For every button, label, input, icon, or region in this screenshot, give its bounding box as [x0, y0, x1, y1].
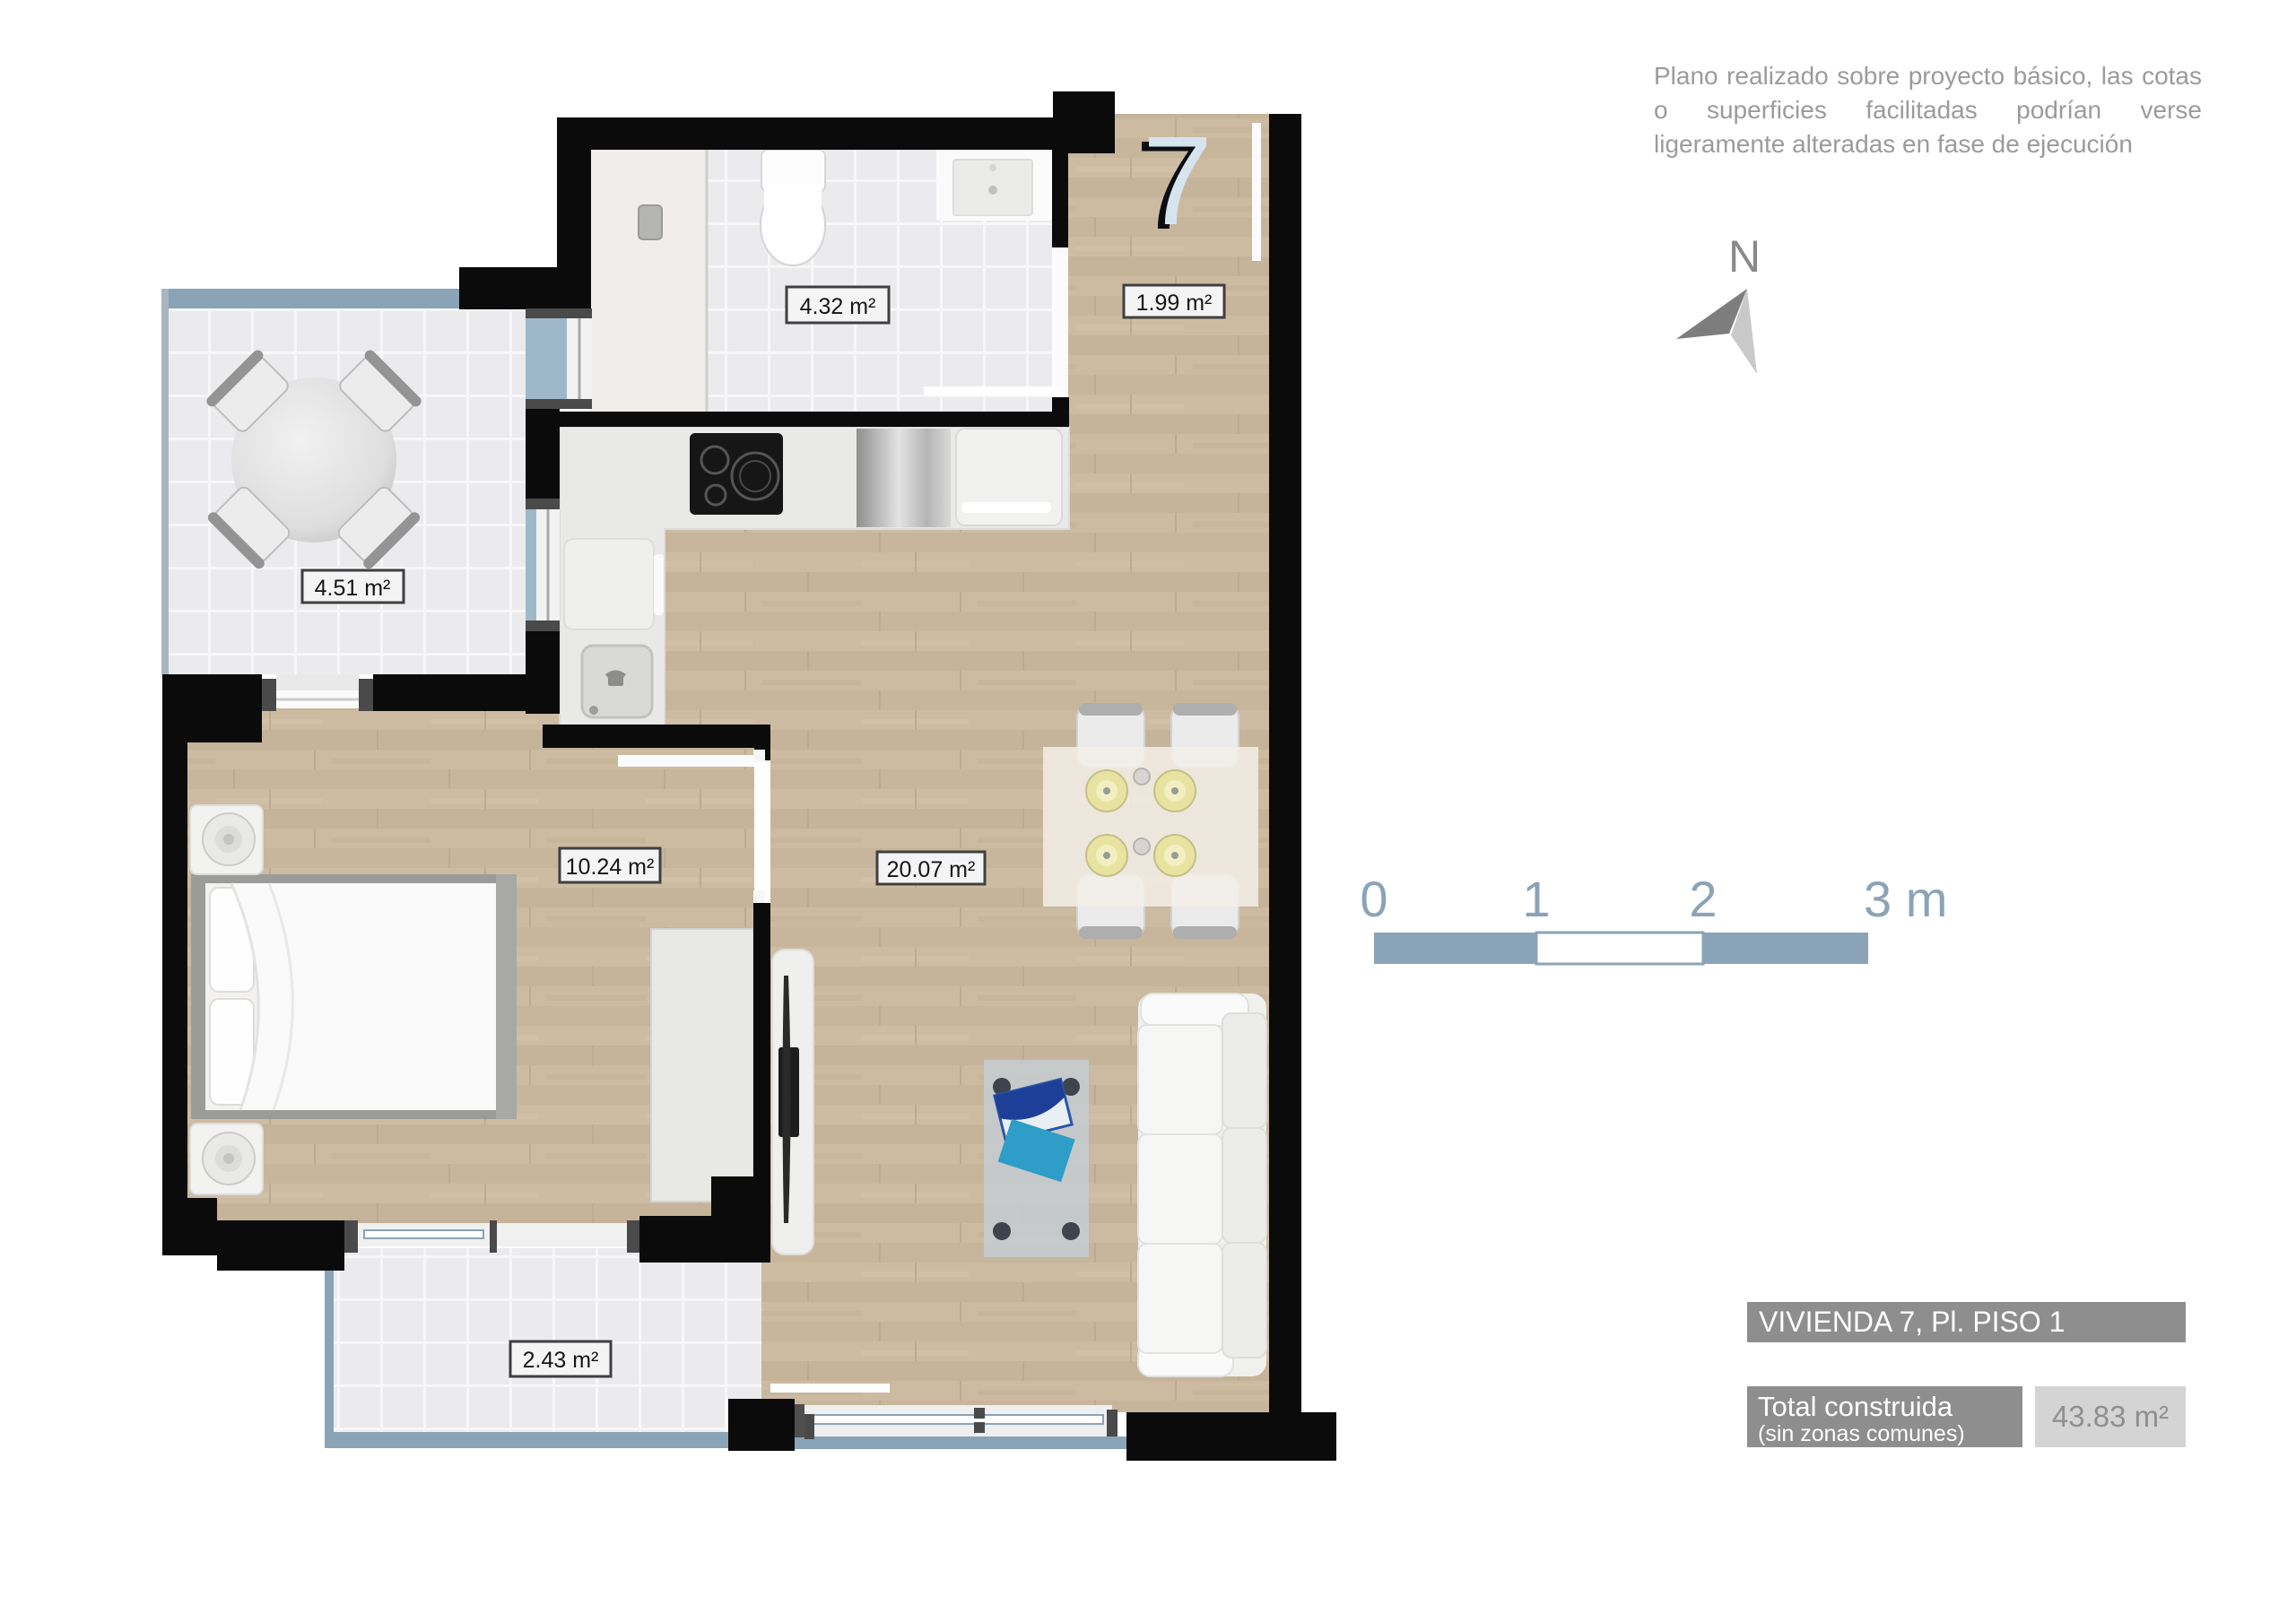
svg-text:0: 0	[1360, 871, 1387, 927]
svg-text:20.07 m²: 20.07 m²	[887, 857, 976, 882]
svg-text:4.51 m²: 4.51 m²	[315, 576, 391, 601]
svg-text:3 m: 3 m	[1864, 871, 1947, 927]
svg-text:1: 1	[1522, 871, 1550, 927]
svg-text:10.24 m²: 10.24 m²	[566, 855, 655, 880]
svg-text:2: 2	[1689, 871, 1717, 927]
svg-text:4.32 m²: 4.32 m²	[800, 294, 876, 319]
svg-text:1.99 m²: 1.99 m²	[1136, 291, 1213, 316]
svg-text:7: 7	[1143, 109, 1213, 251]
svg-text:2.43 m²: 2.43 m²	[523, 1348, 599, 1373]
svg-text:N: N	[1728, 231, 1761, 282]
